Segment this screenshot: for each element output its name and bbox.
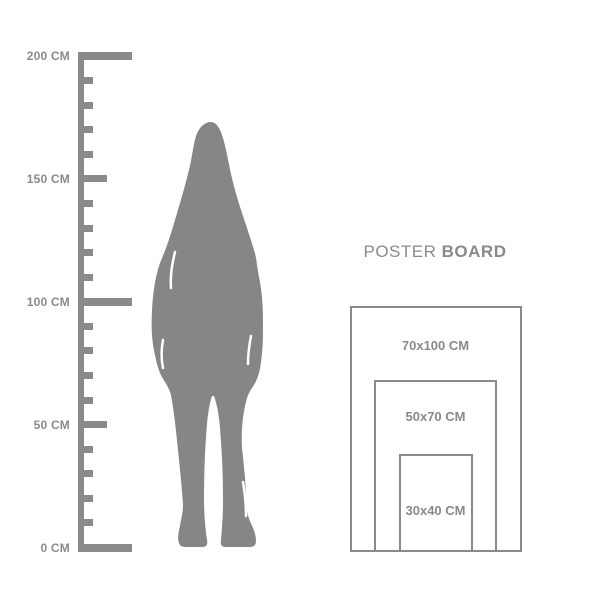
poster-size-label-70x100: 70x100 CM [335,338,536,354]
size-comparison-diagram: 200 CM150 CM100 CM50 CM0 CM POSTER BOARD… [0,0,600,600]
poster-size-label-50x70: 50x70 CM [335,409,536,425]
poster-title-bold: BOARD [442,242,507,261]
poster-size-label-30x40: 30x40 CM [335,503,536,519]
woman-silhouette-path [152,122,263,547]
poster-board-title: POSTER BOARD [335,241,535,263]
poster-title-regular: POSTER [364,242,437,261]
